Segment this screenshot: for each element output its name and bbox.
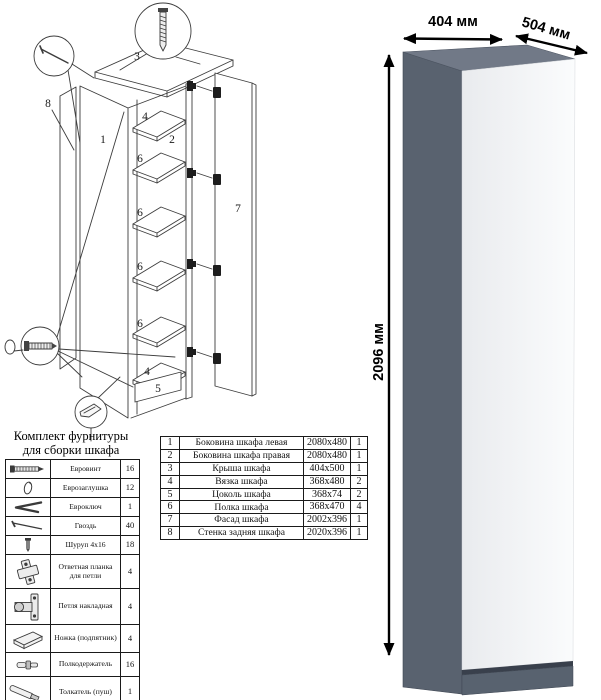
parts-row: 7 Фасад шкафа 2002x396 1	[161, 514, 368, 527]
callout-1: 1	[100, 134, 106, 146]
hardware-icon-cell	[6, 625, 51, 653]
hardware-qty: 4	[121, 625, 140, 653]
hardware-icon-cell	[6, 677, 51, 700]
parts-row: 6 Полка шкафа 368x470 4	[161, 501, 368, 514]
euro-cap-icon	[8, 481, 48, 495]
width-dimension-label: 404 мм	[428, 14, 478, 30]
part-name: Боковина шкафа правая	[180, 449, 304, 462]
hardware-name: Евровинт	[51, 460, 121, 479]
foot-icon	[8, 628, 48, 650]
hardware-qty: 16	[121, 460, 140, 479]
hardware-name: Полкодержатель	[51, 653, 121, 677]
hardware-row: Шуруп 4x16 18	[6, 536, 140, 555]
part-number: 7	[161, 514, 180, 527]
hardware-kit-title-line2: для сборки шкафа	[2, 443, 140, 457]
parts-row: 3 Крыша шкафа 404x500 1	[161, 462, 368, 475]
callout-6a: 6	[137, 153, 143, 165]
callout-6c: 6	[137, 261, 143, 273]
wardrobe-render: 404 мм 504 мм 2096 мм	[360, 0, 601, 700]
door-shape	[215, 73, 256, 396]
part-name: Цоколь шкафа	[180, 488, 304, 501]
part-name: Крыша шкафа	[180, 462, 304, 475]
hardware-icon-cell	[6, 589, 51, 625]
wardrobe-door-face	[462, 59, 575, 670]
hardware-icon-cell	[6, 536, 51, 555]
hardware-qty: 16	[121, 653, 140, 677]
euro-screw-icon	[8, 462, 48, 476]
pusher-icon	[8, 680, 48, 700]
hardware-name: Шуруп 4x16	[51, 536, 121, 555]
hardware-qty: 40	[121, 517, 140, 536]
hardware-row: Полкодержатель 16	[6, 653, 140, 677]
parts-row: 2 Боковина шкафа правая 2080x480 1	[161, 449, 368, 462]
part-size: 2020x396	[304, 527, 351, 540]
hardware-row: Ножка (подпятник) 4	[6, 625, 140, 653]
hardware-qty: 18	[121, 536, 140, 555]
part-name: Фасад шкафа	[180, 514, 304, 527]
width-dimension-arrow	[404, 39, 502, 40]
part-name: Стенка задняя шкафа	[180, 527, 304, 540]
hardware-name: Ответная планка для петли	[51, 555, 121, 589]
part-number: 3	[161, 462, 180, 475]
hardware-icon-cell	[6, 498, 51, 517]
parts-row: 5 Цоколь шкафа 368x74 2	[161, 488, 368, 501]
hardware-qty: 1	[121, 498, 140, 517]
callout-4-bottom: 4	[144, 366, 150, 378]
hardware-row: Ответная планка для петли 4	[6, 555, 140, 589]
part-name: Боковина шкафа левая	[180, 437, 304, 450]
callout-6d: 6	[137, 318, 143, 330]
parts-row: 4 Вязка шкафа 368x480 2	[161, 475, 368, 488]
parts-table: 1 Боковина шкафа левая 2080x480 1 2 Боко…	[160, 436, 368, 540]
hardware-name: Евроключ	[51, 498, 121, 517]
wardrobe-side-face	[403, 52, 462, 694]
hardware-name: Еврозаглушка	[51, 479, 121, 498]
part-size: 404x500	[304, 462, 351, 475]
hardware-icon-cell	[6, 479, 51, 498]
parts-row: 8 Стенка задняя шкафа 2020x396 1	[161, 527, 368, 540]
hardware-kit-title-line1: Комплект фурнитуры	[2, 429, 140, 443]
callout-4-top: 4	[142, 111, 148, 123]
assembly-instruction-sheet: 1 2 3 4 4 5 6 6 6 6 7 8 Комплект фурниту…	[0, 0, 601, 700]
strike-plate-icon	[8, 558, 48, 586]
hardware-qty: 4	[121, 555, 140, 589]
part-number: 4	[161, 475, 180, 488]
part-name: Полка шкафа	[180, 501, 304, 514]
hardware-kit-title: Комплект фурнитуры для сборки шкафа	[2, 429, 140, 457]
part-size: 2080x480	[304, 437, 351, 450]
callout-3: 3	[134, 51, 140, 63]
hardware-name: Петля накладная	[51, 589, 121, 625]
hardware-name: Гвоздь	[51, 517, 121, 536]
hardware-row: Гвоздь 40	[6, 517, 140, 536]
hinge-icon	[8, 592, 48, 622]
nail-detail-circle	[34, 36, 94, 78]
top-stretcher-shape	[133, 111, 185, 141]
screw-icon	[8, 537, 48, 553]
hardware-row: Толкатель (пуш) 1	[6, 677, 140, 700]
hardware-row: Евроключ 1	[6, 498, 140, 517]
hardware-row: Еврозаглушка 12	[6, 479, 140, 498]
part-size: 2002x396	[304, 514, 351, 527]
part-number: 2	[161, 449, 180, 462]
hardware-row: Евровинт 16	[6, 460, 140, 479]
hardware-table: Евровинт 16 Еврозаглушка 12 Евроключ 1	[5, 459, 140, 700]
part-name: Вязка шкафа	[180, 475, 304, 488]
part-size: 368x74	[304, 488, 351, 501]
hardware-row: Петля накладная 4	[6, 589, 140, 625]
hardware-icon-cell	[6, 460, 51, 479]
hardware-qty: 4	[121, 589, 140, 625]
hardware-icon-cell	[6, 653, 51, 677]
height-dimension-label: 2096 мм	[371, 323, 387, 381]
hardware-icon-cell	[6, 555, 51, 589]
part-number: 6	[161, 501, 180, 514]
shelf-support-icon	[8, 658, 48, 672]
part-size: 368x480	[304, 475, 351, 488]
callout-5: 5	[155, 383, 161, 395]
part-size: 2080x480	[304, 449, 351, 462]
hardware-qty: 1	[121, 677, 140, 700]
euro-key-icon	[8, 500, 48, 514]
part-number: 5	[161, 488, 180, 501]
nail-icon	[8, 519, 48, 533]
exploded-view-diagram: 1 2 3 4 4 5 6 6 6 6 7 8	[0, 0, 365, 455]
part-size: 368x470	[304, 501, 351, 514]
part-number: 1	[161, 437, 180, 450]
parts-row: 1 Боковина шкафа левая 2080x480 1	[161, 437, 368, 450]
callout-6b: 6	[137, 207, 143, 219]
callout-2: 2	[169, 134, 175, 146]
callout-7: 7	[235, 203, 241, 215]
hardware-name: Толкатель (пуш)	[51, 677, 121, 700]
euro-screw-detail-circle	[135, 3, 191, 59]
hardware-icon-cell	[6, 517, 51, 536]
hardware-name: Ножка (подпятник)	[51, 625, 121, 653]
callout-8: 8	[45, 98, 51, 110]
hardware-qty: 12	[121, 479, 140, 498]
part-number: 8	[161, 527, 180, 540]
